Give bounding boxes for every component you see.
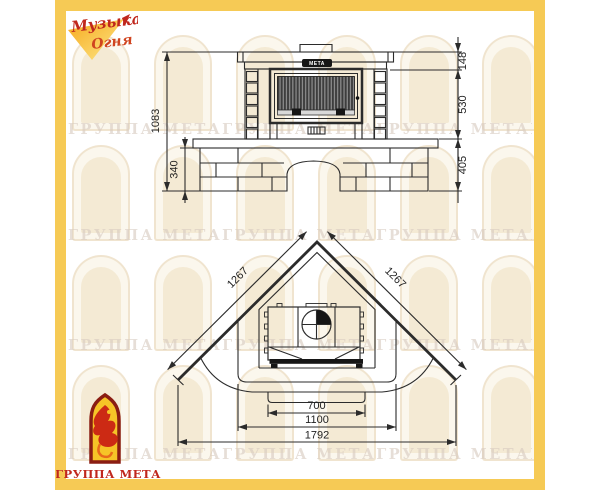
firebird-eye <box>107 410 111 414</box>
group-meta-logo: ГРУППА МЕТА <box>56 392 166 484</box>
page: { "branding": { "top_logo_line1": "Музык… <box>0 0 600 490</box>
logo-bottom-label: ГРУППА МЕТА <box>56 467 161 481</box>
music-of-fire-logo: Музыка Огня <box>62 12 138 70</box>
